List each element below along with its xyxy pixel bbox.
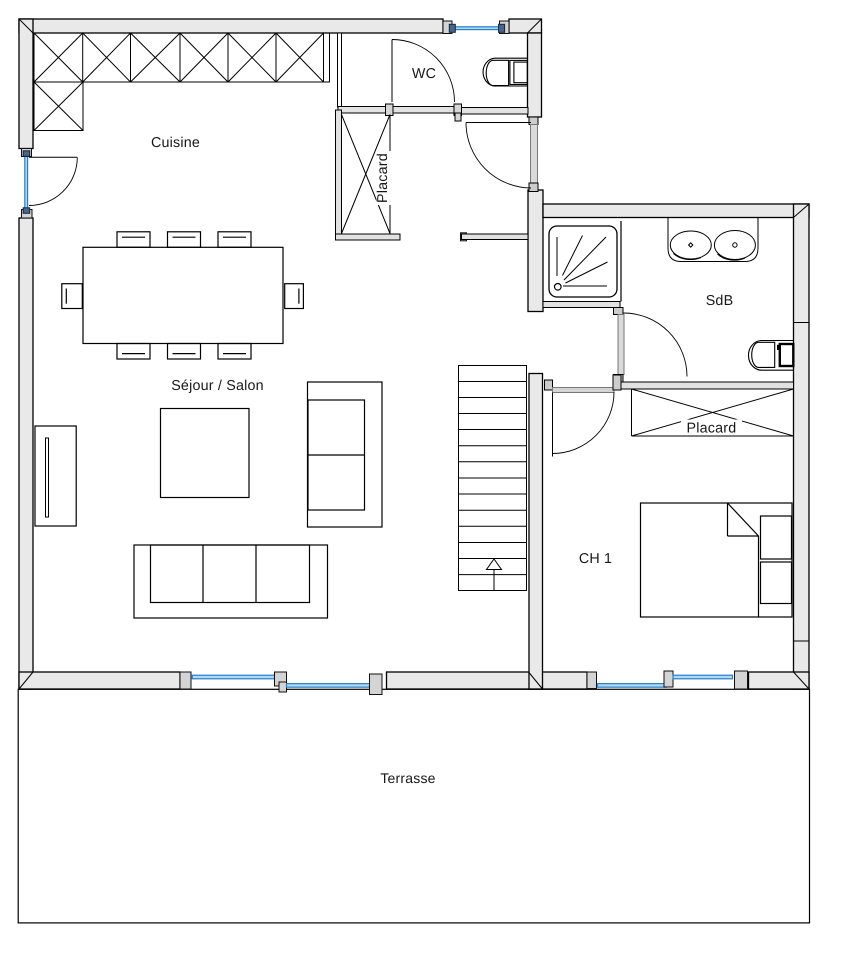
svg-text:Cuisine: Cuisine — [151, 135, 200, 151]
svg-text:WC: WC — [412, 66, 436, 82]
svg-text:CH 1: CH 1 — [579, 551, 612, 567]
svg-text:SdB: SdB — [706, 293, 734, 309]
svg-text:Placard: Placard — [375, 153, 391, 203]
svg-text:Séjour / Salon: Séjour / Salon — [171, 378, 264, 394]
svg-text:Terrasse: Terrasse — [380, 770, 435, 786]
svg-text:Placard: Placard — [687, 420, 737, 436]
